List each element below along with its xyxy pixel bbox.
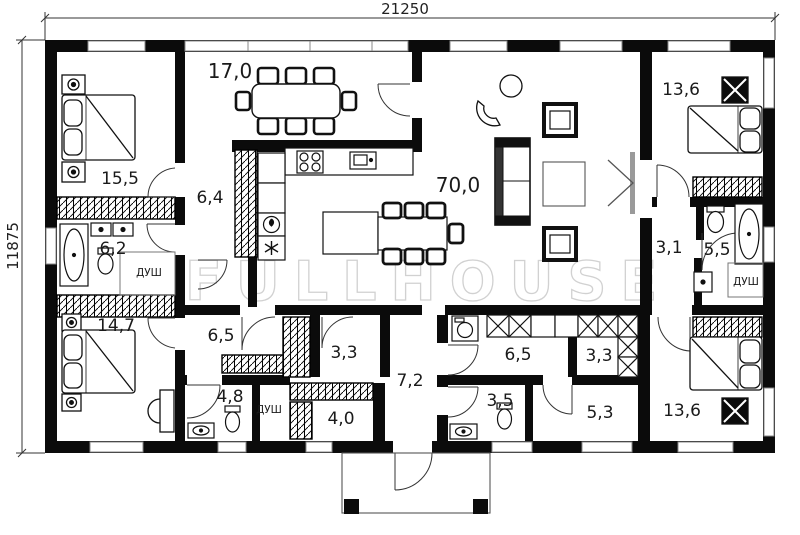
kitchen-island bbox=[323, 212, 378, 254]
chair-icon bbox=[427, 203, 445, 218]
lounge-chair-icon bbox=[477, 101, 500, 126]
room-label-bath-main: 6,2 bbox=[99, 239, 126, 259]
mirror-icon bbox=[148, 399, 160, 423]
room-label-bedroom-bl: 14,7 bbox=[97, 316, 135, 336]
room-label-bath-right: 5,5 bbox=[703, 240, 730, 260]
chair-icon bbox=[427, 249, 445, 264]
kitchen bbox=[258, 148, 463, 264]
chair-icon bbox=[258, 118, 278, 134]
room-label-entry: 4,0 bbox=[327, 409, 354, 429]
room-label-bedroom-tl: 15,5 bbox=[101, 169, 139, 189]
room-label-shower-right: ДУШ bbox=[733, 276, 759, 288]
entrance-door-arc bbox=[395, 453, 432, 490]
room-label-living: 70,0 bbox=[436, 173, 481, 197]
door-arc bbox=[148, 168, 175, 197]
room-label-wc35: 3,5 bbox=[486, 391, 513, 411]
sliding-door-arrow bbox=[608, 160, 633, 206]
wardrobe-hatch bbox=[57, 197, 175, 219]
chair-icon bbox=[383, 249, 401, 264]
room-label-corridor: 7,2 bbox=[396, 371, 423, 391]
porch-pillar bbox=[344, 499, 359, 514]
island-table bbox=[378, 217, 447, 250]
room-label-bedroom-br: 13,6 bbox=[663, 401, 701, 421]
coffee-table-icon bbox=[543, 162, 585, 206]
chair-icon bbox=[383, 203, 401, 218]
door-arc bbox=[148, 318, 175, 348]
room-label-shower-main: ДУШ bbox=[136, 267, 162, 279]
room-label-shower-left: ДУШ bbox=[256, 404, 282, 416]
room-label-dining: 17,0 bbox=[208, 59, 253, 83]
wardrobe-hatch bbox=[283, 317, 310, 377]
tall-cabinet bbox=[258, 183, 285, 213]
chair-icon bbox=[405, 249, 423, 264]
room-label-65l: 6,5 bbox=[207, 326, 234, 346]
chair-icon bbox=[449, 224, 463, 243]
dimension-width-label: 21250 bbox=[381, 0, 429, 18]
door-arc bbox=[657, 165, 689, 197]
room-label-53: 5,3 bbox=[586, 403, 613, 423]
door-arc bbox=[242, 317, 275, 350]
room-label-wc48: 4,8 bbox=[216, 387, 243, 407]
wardrobe-hatch bbox=[693, 317, 762, 337]
chair-icon bbox=[258, 68, 278, 84]
room-label-65r: 6,5 bbox=[504, 345, 531, 365]
chair-icon bbox=[286, 68, 306, 84]
door-arc bbox=[187, 385, 220, 418]
wc48-fixtures bbox=[188, 406, 240, 438]
wardrobe-hatch bbox=[290, 383, 373, 400]
dimension-height-label: 11875 bbox=[4, 222, 22, 270]
door-arc bbox=[658, 317, 690, 351]
chair-icon bbox=[342, 92, 356, 110]
dining-table-icon bbox=[252, 84, 340, 118]
bedroom-tl-furniture bbox=[62, 75, 135, 182]
wardrobe-hatch bbox=[693, 177, 762, 197]
room-label-33r: 3,3 bbox=[585, 346, 612, 366]
wardrobe-hatch bbox=[290, 402, 312, 439]
laundry-fixtures bbox=[452, 316, 478, 341]
door-arc bbox=[448, 387, 478, 417]
living-furniture bbox=[477, 75, 585, 260]
floor-plan-drawing: 21250 11875 FULLHOUSE bbox=[0, 0, 800, 535]
sliding-door bbox=[608, 152, 635, 214]
room-label-33l: 3,3 bbox=[330, 343, 357, 363]
door-arc bbox=[147, 224, 175, 252]
chair-icon bbox=[236, 92, 250, 110]
dresser-icon bbox=[160, 390, 174, 432]
door-arc bbox=[378, 84, 410, 116]
wardrobe-hatch bbox=[235, 150, 257, 257]
bath-main-fixtures bbox=[60, 223, 175, 295]
floor-plan-page: 21250 11875 FULLHOUSE bbox=[0, 0, 800, 535]
chair-icon bbox=[286, 118, 306, 134]
room-label-hall-small: 3,1 bbox=[655, 238, 682, 258]
chair-icon bbox=[314, 118, 334, 134]
entrance-opening bbox=[393, 441, 432, 453]
porch-pillar bbox=[473, 499, 488, 514]
wardrobe-hatch bbox=[222, 355, 283, 373]
room-label-hall: 6,4 bbox=[196, 188, 223, 208]
room-label-bedroom-tr: 13,6 bbox=[662, 80, 700, 100]
dining-furniture bbox=[236, 68, 356, 134]
door-arc bbox=[448, 345, 478, 375]
plant-icon bbox=[500, 75, 522, 97]
chair-icon bbox=[314, 68, 334, 84]
door-arc bbox=[543, 385, 572, 414]
chair-icon bbox=[405, 203, 423, 218]
tall-cabinet bbox=[258, 153, 285, 183]
